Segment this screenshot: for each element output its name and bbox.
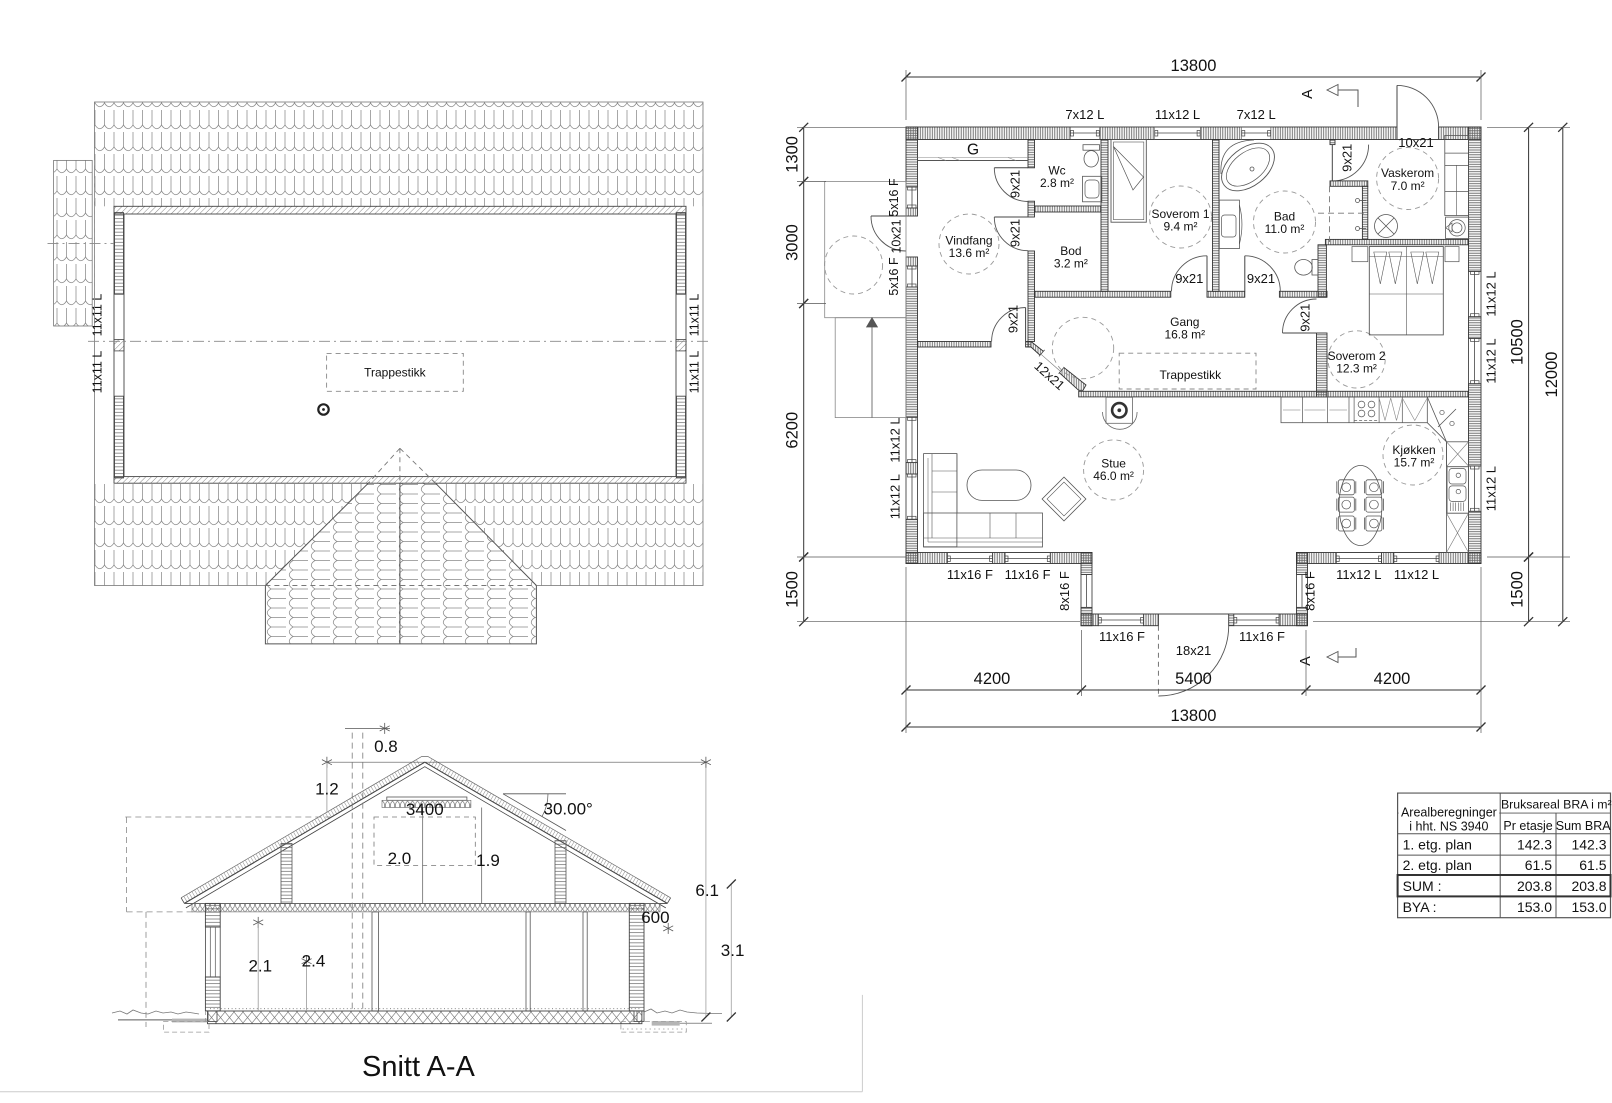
svg-text:9x21: 9x21 — [1298, 304, 1313, 332]
svg-text:2.4: 2.4 — [302, 952, 326, 971]
svg-text:11x11 L: 11x11 L — [687, 351, 701, 394]
svg-text:11x12 L: 11x12 L — [1484, 338, 1499, 383]
svg-text:0.8: 0.8 — [374, 737, 398, 756]
svg-text:11x16 F: 11x16 F — [1005, 567, 1051, 582]
svg-text:2.8 m²: 2.8 m² — [1040, 176, 1074, 190]
svg-text:1300: 1300 — [784, 136, 802, 173]
svg-text:5400: 5400 — [1175, 670, 1212, 688]
svg-text:203.8: 203.8 — [1517, 878, 1552, 894]
svg-text:11x11 L: 11x11 L — [91, 351, 105, 394]
svg-text:i hht. NS 3940: i hht. NS 3940 — [1409, 820, 1488, 834]
svg-text:5x16 F: 5x16 F — [887, 257, 901, 296]
svg-text:600: 600 — [641, 908, 669, 927]
svg-text:11x12 L: 11x12 L — [888, 474, 903, 519]
svg-text:9x21: 9x21 — [1006, 305, 1021, 333]
svg-text:7.0 m²: 7.0 m² — [1391, 179, 1425, 193]
svg-text:11x11 L: 11x11 L — [91, 294, 105, 337]
svg-text:30.00°: 30.00° — [544, 800, 593, 819]
svg-text:9x21: 9x21 — [1247, 271, 1275, 286]
svg-text:153.0: 153.0 — [1517, 899, 1552, 915]
svg-text:11x12 L: 11x12 L — [888, 417, 903, 462]
svg-text:7x12 L: 7x12 L — [1065, 107, 1104, 122]
svg-text:4200: 4200 — [974, 670, 1011, 688]
svg-text:12000: 12000 — [1543, 352, 1561, 398]
svg-text:11x11 L: 11x11 L — [687, 294, 701, 337]
svg-text:11x12 L: 11x12 L — [1394, 567, 1439, 582]
svg-text:9x21: 9x21 — [1008, 219, 1023, 247]
svg-text:Pr etasje: Pr etasje — [1503, 819, 1552, 833]
svg-text:2.1: 2.1 — [248, 957, 272, 976]
svg-text:11x12 L: 11x12 L — [1484, 271, 1499, 316]
svg-text:3400: 3400 — [406, 800, 444, 819]
svg-text:11x16 F: 11x16 F — [1099, 629, 1145, 644]
svg-text:9x21: 9x21 — [1008, 170, 1023, 198]
svg-text:203.8: 203.8 — [1571, 878, 1606, 894]
svg-text:1500: 1500 — [784, 571, 802, 608]
svg-text:1.9: 1.9 — [476, 851, 500, 870]
svg-text:13800: 13800 — [1171, 707, 1217, 725]
svg-text:3.2 m²: 3.2 m² — [1054, 257, 1088, 271]
svg-text:7x12 L: 7x12 L — [1237, 107, 1276, 122]
svg-text:11x12 L: 11x12 L — [1155, 107, 1200, 122]
svg-text:Sum BRA: Sum BRA — [1556, 819, 1612, 833]
svg-text:142.3: 142.3 — [1517, 837, 1552, 853]
svg-text:A: A — [1300, 89, 1316, 99]
svg-text:15.7 m²: 15.7 m² — [1394, 456, 1435, 470]
svg-text:8x16 F: 8x16 F — [1057, 571, 1072, 611]
svg-text:46.0 m²: 46.0 m² — [1093, 469, 1134, 483]
svg-text:10x21: 10x21 — [1398, 135, 1433, 150]
svg-text:1.2: 1.2 — [315, 780, 339, 799]
svg-text:11x12 L: 11x12 L — [1484, 466, 1499, 511]
svg-text:Snitt A-A: Snitt A-A — [362, 1051, 475, 1083]
svg-text:Bruksareal BRA i m²: Bruksareal BRA i m² — [1501, 798, 1612, 812]
svg-text:61.5: 61.5 — [1525, 857, 1552, 873]
svg-text:2. etg. plan: 2. etg. plan — [1403, 857, 1472, 873]
svg-text:10500: 10500 — [1509, 319, 1527, 365]
svg-text:12.3 m²: 12.3 m² — [1336, 362, 1377, 376]
svg-text:1500: 1500 — [1509, 571, 1527, 608]
svg-text:G: G — [967, 142, 979, 159]
svg-text:6.1: 6.1 — [695, 881, 719, 900]
svg-text:18x21: 18x21 — [1176, 643, 1211, 658]
svg-text:61.5: 61.5 — [1579, 857, 1606, 873]
svg-text:Trappestikk: Trappestikk — [364, 366, 427, 380]
svg-text:142.3: 142.3 — [1571, 837, 1606, 853]
svg-text:13.6 m²: 13.6 m² — [949, 246, 990, 260]
svg-text:BYA :: BYA : — [1403, 899, 1437, 915]
svg-text:2.0: 2.0 — [388, 849, 412, 868]
svg-text:13800: 13800 — [1171, 57, 1217, 75]
svg-text:5x16 F: 5x16 F — [887, 178, 901, 217]
svg-text:3000: 3000 — [784, 224, 802, 261]
svg-text:6200: 6200 — [784, 412, 802, 449]
svg-text:3.1: 3.1 — [721, 941, 745, 960]
svg-text:16.8 m²: 16.8 m² — [1164, 328, 1205, 342]
svg-text:10x21: 10x21 — [890, 219, 904, 253]
svg-text:4200: 4200 — [1374, 670, 1411, 688]
svg-text:8x16 F: 8x16 F — [1303, 571, 1318, 611]
svg-text:SUM :: SUM : — [1403, 878, 1442, 894]
svg-text:1. etg. plan: 1. etg. plan — [1403, 837, 1472, 853]
svg-text:9.4 m²: 9.4 m² — [1163, 220, 1197, 234]
svg-text:Trappestikk: Trappestikk — [1160, 368, 1223, 382]
svg-text:11x16 F: 11x16 F — [947, 567, 993, 582]
svg-text:9x21: 9x21 — [1340, 144, 1355, 172]
svg-text:11x16 F: 11x16 F — [1239, 629, 1285, 644]
svg-text:11.0 m²: 11.0 m² — [1265, 222, 1305, 236]
svg-text:153.0: 153.0 — [1571, 899, 1606, 915]
svg-text:11x12 L: 11x12 L — [1336, 567, 1381, 582]
svg-text:Arealberegninger: Arealberegninger — [1401, 806, 1497, 820]
svg-text:9x21: 9x21 — [1175, 271, 1203, 286]
